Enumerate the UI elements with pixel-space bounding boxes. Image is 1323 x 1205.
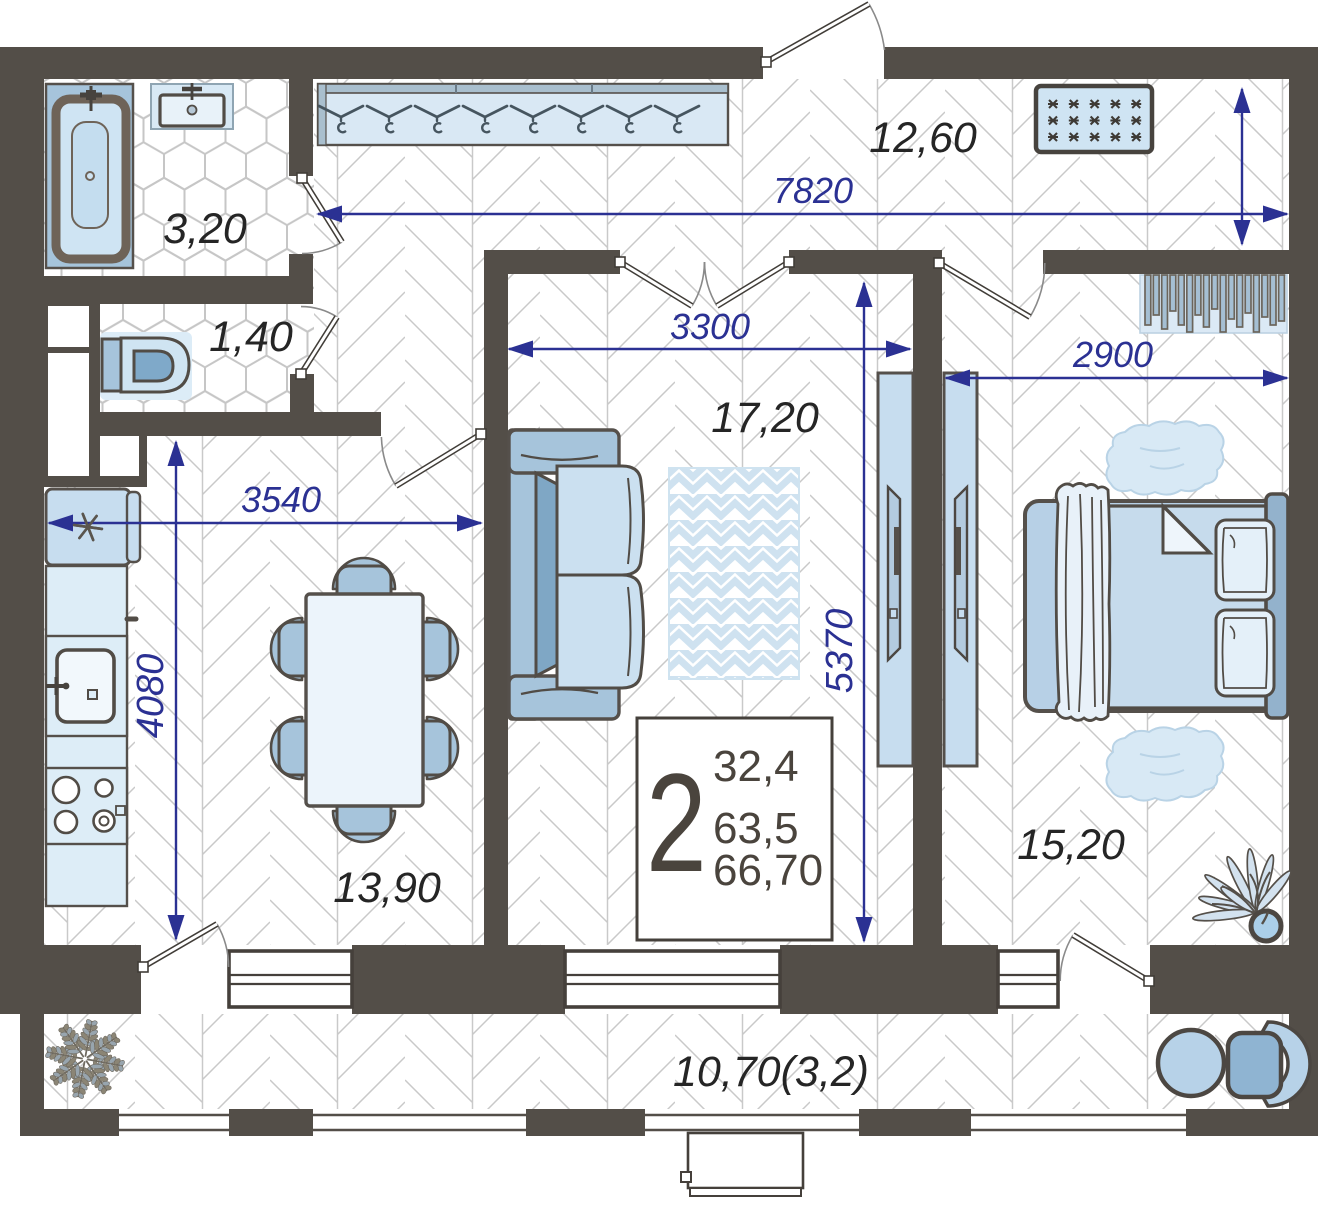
svg-text:15,20: 15,20 bbox=[1017, 821, 1125, 869]
svg-text:17,20: 17,20 bbox=[711, 394, 819, 442]
svg-text:4080: 4080 bbox=[130, 654, 172, 739]
svg-text:7820: 7820 bbox=[773, 170, 853, 211]
svg-text:5370: 5370 bbox=[819, 609, 861, 694]
svg-text:66,70: 66,70 bbox=[713, 846, 823, 895]
svg-text:2900: 2900 bbox=[1072, 334, 1153, 375]
svg-text:12,60: 12,60 bbox=[869, 114, 977, 162]
svg-text:3,20: 3,20 bbox=[163, 205, 247, 253]
svg-text:10,70(3,2): 10,70(3,2) bbox=[673, 1048, 869, 1096]
svg-text:1,40: 1,40 bbox=[209, 313, 293, 361]
svg-text:3300: 3300 bbox=[670, 306, 750, 347]
svg-text:3540: 3540 bbox=[241, 479, 321, 520]
svg-text:2: 2 bbox=[646, 744, 707, 901]
svg-text:32,4: 32,4 bbox=[713, 742, 799, 791]
svg-text:13,90: 13,90 bbox=[333, 864, 441, 912]
